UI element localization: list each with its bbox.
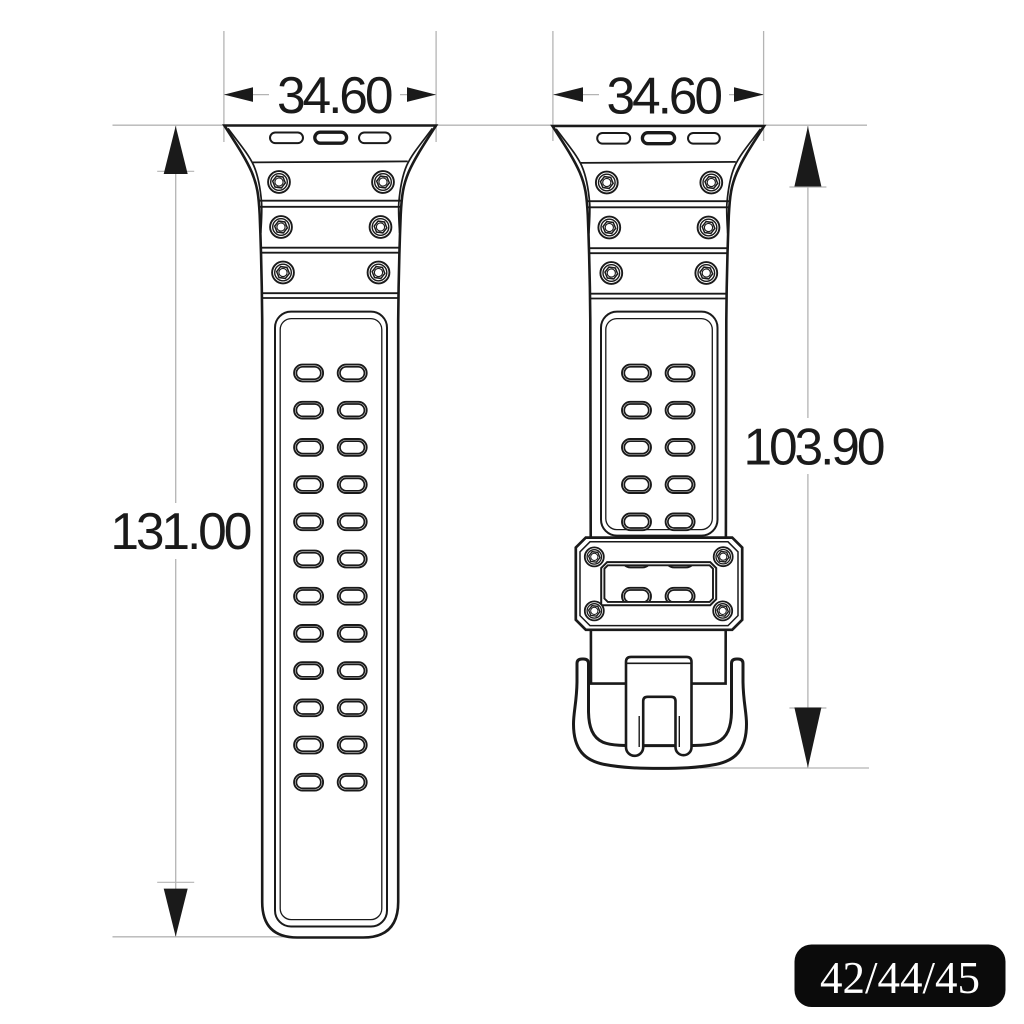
svg-text:34.60: 34.60	[277, 66, 392, 124]
svg-text:42/44/45: 42/44/45	[820, 953, 980, 1003]
svg-text:34.60: 34.60	[607, 67, 722, 125]
svg-text:131.00: 131.00	[110, 502, 250, 560]
svg-text:103.90: 103.90	[743, 417, 883, 475]
